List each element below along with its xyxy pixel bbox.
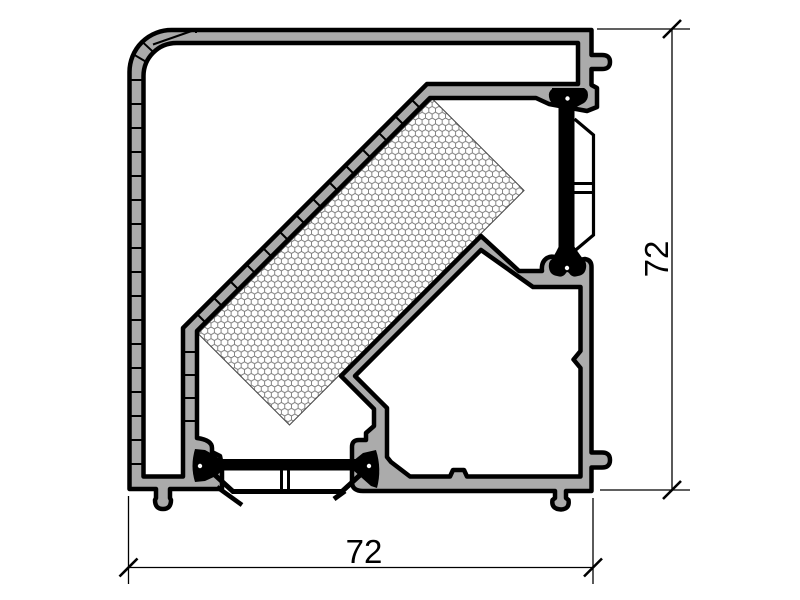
svg-text:72: 72: [638, 241, 675, 278]
svg-text:72: 72: [346, 533, 383, 570]
